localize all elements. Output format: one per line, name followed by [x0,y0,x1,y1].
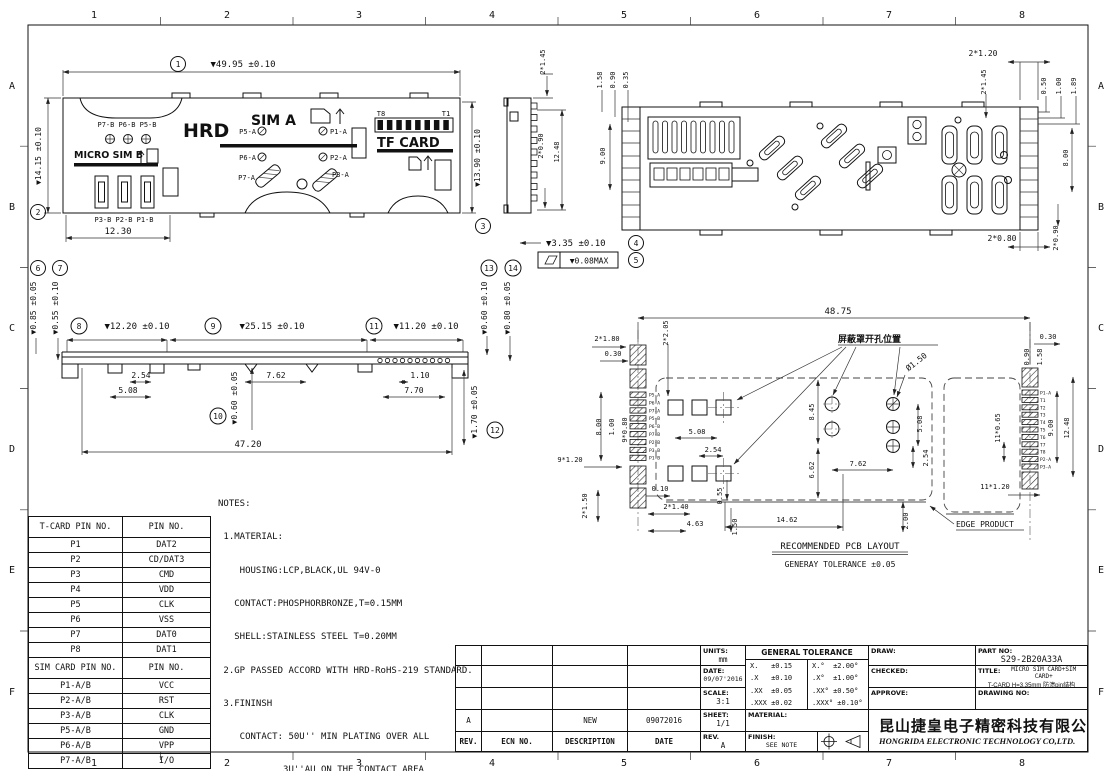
material-cell: MATERIAL: [745,709,869,732]
dim: 0.55 [716,488,724,505]
rev-table-cell [627,645,701,666]
dim: 14.62 [776,516,797,524]
dim: 9.00 [599,148,607,165]
row-label: A [1098,81,1104,92]
pin-cell: P6 [29,613,123,628]
projection-symbol-cell [817,731,869,752]
balloon: 10 [213,412,223,421]
dim: ▼12.20 ±0.10 [104,322,169,332]
tolerance-row: .XX° ±0.50° [808,685,868,697]
rev-table-cell [552,665,628,688]
balloon: 3 [481,222,486,231]
pad-label: T5 [1040,428,1046,434]
pad-label: P2-A [1040,457,1051,463]
dim: 2*0.80 [988,234,1017,243]
dim: 2*1.20 [969,49,998,58]
dim: ▼0.60 ±0.10 [480,281,489,334]
pin-cell: P7 [29,628,123,643]
dim: 8.00 [1062,150,1070,167]
dim: 1.58 [596,72,604,89]
col-label: 5 [621,758,627,769]
dim: 2*1.45 [980,69,988,94]
pin-cell: P5-A/B [29,724,123,739]
company-names: 昆山捷皇电子精密科技有限公司 HONGRIDA ELECTRONIC TECHN… [879,715,1088,746]
pad-label: P7-B [649,432,660,438]
pad-label: T7 [1040,442,1046,448]
dim: ▼11.20 ±0.10 [393,322,458,332]
pin-label: P1-A [330,128,348,136]
pin-cell: P8 [29,643,123,658]
note-line: 1.MATERIAL: [218,532,505,543]
sim-a-label: SIM A [251,113,296,129]
row-label: B [9,202,15,213]
rev-table-cell [455,645,482,666]
finish-label: FINISH: [746,732,817,741]
shield-open-note: 屏蔽罩开孔位置 [838,333,901,344]
balloon: 6 [36,264,41,273]
dim: 47.20 [234,440,261,450]
dim: 2.54 [922,450,930,467]
dim: 0.10 [652,485,669,493]
pin-table-header: T-CARD PIN NO. [29,517,123,538]
pin-cell: P6-A/B [29,739,123,754]
pin-cell: VPP [123,739,211,754]
rev-ecn-value [481,709,553,732]
col-label: 8 [1019,10,1025,21]
draw-label: DRAW: [869,646,975,655]
balloon: 1 [176,60,181,69]
rev-header: DATE [627,731,701,752]
rev-value: A [455,709,482,732]
pin-label: P3-A [332,171,350,179]
col-label: 1 [91,10,97,21]
row-label: D [9,444,15,455]
dim: 2*1.80 [594,335,619,343]
dim: 2.54 [131,371,150,380]
pad-label: T8 [1040,450,1046,456]
pcb-layout-caption: RECOMMENDED PCB LAYOUT [780,542,900,552]
pin-cell: CLK [123,598,211,613]
units-label: UNITS: [701,646,745,655]
dim: 1.00 [608,419,616,436]
pin-cell: P3 [29,568,123,583]
scale-cell: SCALE: 3:1 [700,687,746,710]
company-name-en: HONGRIDA ELECTRONIC TECHNOLOGY CO,LTD. [879,736,1088,746]
view-pcb-layout: 屏蔽罩开孔位置 Ø1.50 48.75 2*1.80 0.30 2*2.05 8… [557,307,1073,569]
dim: 6.62 [808,462,816,479]
flatness-callout: ▼0.08MAX [570,257,609,266]
dim-top-width: ▼49.95 ±0.10 [210,60,275,70]
pin-cell: CLK [123,709,211,724]
third-angle-projection-icon [818,732,868,751]
dim: 1.50 [731,519,739,536]
part-no-cell: PART NO: S29-2B20A33A [975,645,1088,666]
dim: 1.00 [1055,78,1063,95]
dims-front-view: 6 7 ▼0.85 ±0.05 ▼0.55 ±0.10 13 14 ▼0.60 … [29,260,521,452]
balloon: 12 [490,426,500,435]
tolerance-row: .XX ±0.05 [746,685,807,697]
pad-label: P5-B [649,416,660,422]
rev-header: ECN NO. [481,731,553,752]
col-label: 5 [621,10,627,21]
checked-cell: CHECKED: [868,665,976,688]
pin-cell: CD/DAT3 [123,553,211,568]
balloon: 2 [36,208,41,217]
tolerance-row: .X° ±1.00° [808,672,868,684]
dim: 2.54 [705,446,722,454]
pad-label: P1-B [649,456,660,462]
dim: 0.90 [1023,349,1031,366]
balloon: 7 [58,264,63,273]
dim: 0.35 [622,72,630,89]
sheet-value: 1/1 [701,719,745,728]
dim: ▼0.60 ±0.05 [230,371,239,424]
part-no-value: S29-2B20A33A [976,655,1087,665]
dim-top-height-right: ▼13.90 ±0.10 [473,129,482,187]
col-label: 2 [224,10,230,21]
dim: 1.58 [1036,349,1044,366]
dim: 7.62 [850,460,867,468]
dim-side-flange: 2*1.45 [539,49,547,74]
dim: 1.89 [1070,78,1078,95]
pin-table-header: PIN NO. [123,517,211,538]
balloon: 9 [211,322,216,331]
rev-header: DESCRIPTION [552,731,628,752]
dim: 5.08 [689,428,706,436]
pad-label: T4 [1040,420,1046,426]
company-name-cn: 昆山捷皇电子精密科技有限公司 [879,715,1088,736]
pcb-left-pad-labels: P5-A P6-A P7-A P5-B P6-B P7-B P2-B P3-B … [649,393,660,462]
dim: 8.00 [595,419,603,436]
checked-label: CHECKED: [869,666,975,675]
view-bottom [622,102,1038,235]
rev-date-value: 09072016 [627,709,701,732]
scale-label: SCALE: [701,688,745,697]
rev-table-cell [481,665,553,688]
dim: 5.08 [118,386,137,395]
tolerance-angular: X.° ±2.00° .X° ±1.00° .XX° ±0.50° .XXX° … [807,659,869,710]
dim: 2*0.90 [1052,225,1060,250]
pin-table-header: SIM CARD PIN NO. [29,658,123,679]
balloon: 11 [369,322,379,331]
note-line: NOTES: [218,499,505,510]
dim: 0.30 [1040,333,1057,341]
pin-label: P5-A [239,128,257,136]
dim: ▼25.15 ±0.10 [239,322,304,332]
note-line: 3U''AU ON THE CONTACT AREA [218,765,505,771]
draw-cell: DRAW: [868,645,976,666]
tolerance-row: X.° ±2.00° [808,660,868,672]
scale-value: 3:1 [701,697,745,706]
row-label: B [1098,202,1104,213]
balloon: 5 [634,256,639,265]
pin-cell: GND [123,724,211,739]
rev-desc-value: NEW [552,709,628,732]
dim: 0.50 [1040,78,1048,95]
pad-label: T1 [1040,398,1046,404]
dim: 9.00 [1047,420,1055,437]
dim: 9*1.20 [557,456,582,464]
pad-label: P3-B P2-B P1-B [94,216,153,224]
title-cell: TITLE: MICRO SIM CARD+SIM CARD+ T-CARD H… [975,665,1088,688]
rev-table-cell [552,645,628,666]
row-label: E [9,565,15,576]
tolerance-linear: X. ±0.15 .X ±0.10 .XX ±0.05 .XXX ±0.02 [745,659,808,710]
dim: 12.48 [1063,417,1071,438]
row-label: D [1098,444,1104,455]
micro-sim-b-label: MICRO SIM B [74,150,143,161]
approve-label: APPROVE: [869,688,975,697]
drawing-no-cell: DRAWING NO: [975,687,1088,710]
tolerance-row: .X ±0.10 [746,672,807,684]
pin-cell: P4 [29,583,123,598]
note-line: HOUSING:LCP,BLACK,UL 94V-0 [218,566,505,577]
dim: 4.63 [687,520,704,528]
pin-table-header: PIN NO. [123,658,211,679]
dim-side-foot: 2*0.90 [537,133,545,158]
rev-table-cell [455,687,482,710]
tf-card-label: TF CARD [377,136,440,151]
balloon: 4 [634,239,639,248]
dim: 8.45 [808,404,816,421]
pin-label: P6-A [239,154,257,162]
title-block: A NEW 09072016 REV. ECN NO. DESCRIPTION … [455,645,1088,752]
dim: 1.10 [410,371,429,380]
row-label: A [9,81,15,92]
pin-cell: I/O [123,754,211,769]
dim-micro-width: 12.30 [104,227,131,237]
pin-cell: P1 [29,538,123,553]
dim: 2*1.50 [581,493,589,518]
tolerance-header: GENERAL TOLERANCE [745,645,869,660]
dim: 48.75 [824,307,851,317]
dim-hole-dia: Ø1.50 [904,350,929,373]
drawing-no-label: DRAWING NO: [976,688,1087,697]
view-top: P7-B P6-B P5-B MICRO SIM B P3-B P2-B P1-… [63,93,460,224]
pin-cell: P2 [29,553,123,568]
pin-cell: P1-A/B [29,679,123,694]
rev-label: REV. [701,732,745,741]
row-label: C [9,323,15,334]
company-cell: VD 昆山捷皇电子精密科技有限公司 HONGRIDA ELECTRONIC TE… [868,709,1088,752]
col-label: 6 [754,10,760,21]
rev-table-cell [627,665,701,688]
col-label: 3 [356,10,362,21]
pin-cell: VDD [123,583,211,598]
rev-cell: REV. A [700,731,746,752]
pin-cell: P3-A/B [29,709,123,724]
dim: 2*2.05 [662,320,670,345]
pin-cell: P2-A/B [29,694,123,709]
dim: 0.90 [609,72,617,89]
pin-label: T8 [377,110,385,118]
dim: 9*0.80 [621,417,629,442]
rev-current-value: A [701,741,745,750]
dim: ▼0.80 ±0.05 [503,281,512,334]
date-cell: DATE: 09/07'2016 [700,665,746,688]
rev-table-cell [627,687,701,710]
dim: ▼0.55 ±0.10 [51,281,60,334]
pad-label: T6 [1040,435,1046,441]
pin-cell: CMD [123,568,211,583]
row-label: C [1098,323,1104,334]
pad-label: P2-B [649,440,660,446]
view-side [504,98,537,213]
dim: 5.08 [916,416,924,433]
finish-value: SEE NOTE [746,741,817,749]
sheet-label: SHEET: [701,710,745,719]
balloon: 14 [508,264,518,273]
pin-label: P7-A [238,174,256,182]
view-front [62,352,468,455]
note-line: SHELL:STAINLESS STEEL T=0.20MM [218,632,505,643]
balloon: 13 [484,264,494,273]
pad-label: P6-B [649,424,660,430]
pin-label: T1 [442,110,450,118]
title-label: TITLE: [976,666,1000,675]
pin-cell: RST [123,694,211,709]
col-label: 8 [1019,758,1025,769]
pcb-tolerance-caption: GENERAY TOLERANCE ±0.05 [785,560,896,569]
rev-table-cell [455,665,482,688]
dim-side-body: 12.48 [553,141,561,162]
pin-cell: P5 [29,598,123,613]
pad-label: P5-A [649,393,660,399]
units-value: mm [701,655,745,664]
finish-cell: FINISH: SEE NOTE [745,731,818,752]
dim: ▼0.85 ±0.05 [29,281,38,334]
pad-label: P1-A [1040,391,1051,397]
pin-table: T-CARD PIN NO.PIN NO. P1DAT2 P2CD/DAT3 P… [28,516,211,769]
dim: 2*1.40 [663,503,688,511]
pin-cell: DAT1 [123,643,211,658]
pad-label: T2 [1040,405,1046,411]
sheet-cell: SHEET: 1/1 [700,709,746,732]
pad-label: P3-A [1040,465,1051,471]
dim: 7.62 [266,371,285,380]
rev-table-cell [552,687,628,710]
dim-side-height: ▼3.35 ±0.10 [546,239,606,249]
pin-cell: VSS [123,613,211,628]
col-label: 7 [886,10,892,21]
pad-label: P6-A [649,400,660,406]
dim: 11*1.20 [980,483,1010,491]
pin-cell: DAT2 [123,538,211,553]
dim-top-height-left: ▼14.15 ±0.10 [34,127,43,185]
pin-label: P2-A [330,154,348,162]
rev-table-cell [481,687,553,710]
col-label: 7 [886,758,892,769]
pad-label: T3 [1040,413,1046,419]
dim: 7.70 [404,386,423,395]
approve-cell: APPROVE: [868,687,976,710]
rev-header: REV. [455,731,482,752]
pad-label: P7-B P6-B P5-B [97,121,156,129]
col-label: 6 [754,758,760,769]
pad-label: P3-B [649,448,660,454]
tolerance-row: X. ±0.15 [746,660,807,672]
brand-label: HRD [183,120,229,142]
pin-cell: P7-A/B [29,754,123,769]
pin-cell: DAT0 [123,628,211,643]
balloon: 8 [77,322,82,331]
row-label: F [9,687,15,698]
rev-table-cell [481,645,553,666]
row-label: F [1098,687,1104,698]
drawing-sheet: 1 2 3 4 5 6 7 8 1 2 3 4 5 6 7 8 A B C D … [0,0,1112,771]
dim: 0.30 [605,350,622,358]
date-label: DATE: [701,666,745,675]
row-label: E [1098,565,1104,576]
pad-label: P7-A [649,408,660,414]
pin-cell: VCC [123,679,211,694]
units-cell: UNITS: mm [700,645,746,666]
dim: 11*0.65 [994,413,1002,443]
note-line: CONTACT:PHOSPHORBRONZE,T=0.15MM [218,599,505,610]
part-no-label: PART NO: [976,646,1087,655]
col-label: 4 [489,10,495,21]
date-value: 09/07'2016 [701,675,745,683]
edge-product-label: EDGE PRODUCT [956,520,1014,529]
tolerance-row: .XXX° ±0.10° [808,697,868,709]
material-label: MATERIAL: [746,710,868,719]
tolerance-row: .XXX ±0.02 [746,697,807,709]
dim: ▼1.70 ±0.05 [470,385,479,438]
